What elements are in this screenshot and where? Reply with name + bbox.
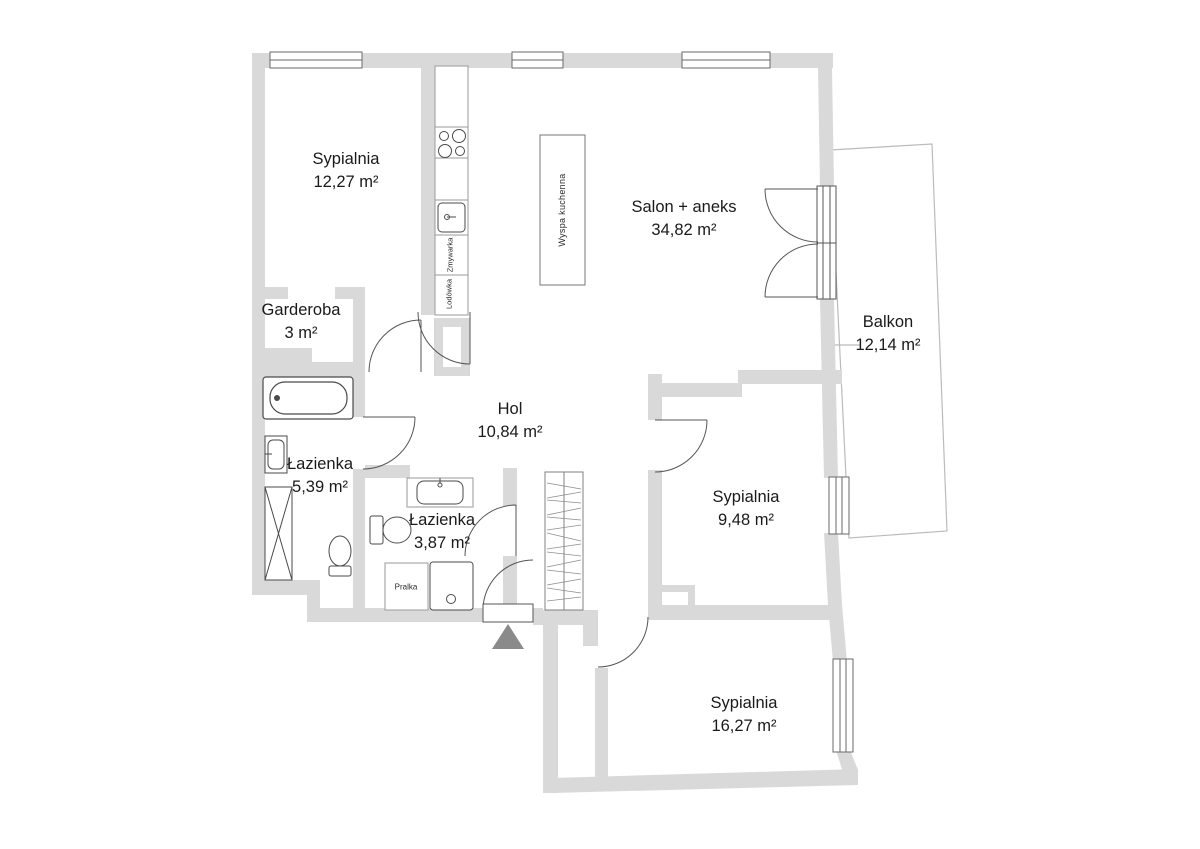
door-arc: [363, 417, 415, 469]
shower-icon: [265, 487, 292, 580]
wall-segment: [828, 605, 847, 662]
wall-niche: [662, 592, 688, 605]
floorplan-canvas: Sypialnia 12,27 m² Garderoba 3 m² Łazien…: [0, 0, 1200, 849]
wall-segment: [648, 383, 742, 397]
shower-tray-icon: [430, 562, 473, 610]
room-area: 3 m²: [262, 322, 341, 345]
window: [833, 659, 853, 752]
room-name: Sypialnia: [313, 150, 380, 168]
wall-segment: [818, 68, 834, 187]
room-name: Sypialnia: [713, 488, 780, 506]
room-name: Balkon: [863, 313, 913, 331]
window: [270, 52, 362, 68]
room-name: Łazienka: [287, 455, 353, 473]
room-area: 16,27 m²: [711, 715, 778, 738]
room-name: Łazienka: [409, 511, 475, 529]
sink-icon: [265, 436, 287, 473]
wall-segment: [595, 668, 608, 782]
wall-segment: [365, 465, 410, 478]
wall-segment: [353, 377, 365, 417]
room-area: 3,87 m²: [409, 532, 475, 555]
room-name: Salon + aneks: [631, 198, 736, 216]
wall-segment: [252, 362, 357, 377]
washing-machine-label: Pralka: [395, 583, 418, 592]
room-area: 12,27 m²: [313, 171, 380, 194]
toilet-icon: [370, 516, 411, 544]
wall-segment: [648, 605, 837, 620]
room-label-sypialnia-3: Sypialnia 16,27 m²: [711, 692, 778, 738]
room-area: 34,82 m²: [631, 219, 736, 242]
window: [512, 52, 563, 68]
room-name: Sypialnia: [711, 694, 778, 712]
toilet-icon: [329, 536, 351, 576]
room-label-salon: Salon + aneks 34,82 m²: [631, 196, 736, 242]
wardrobe-icon: [545, 472, 583, 610]
wall-segment: [820, 299, 838, 478]
entrance-arrow-icon: [492, 624, 524, 649]
room-label-sypialnia-1: Sypialnia 12,27 m²: [313, 148, 380, 194]
room-area: 10,84 m²: [477, 421, 542, 444]
wall-segment: [252, 287, 288, 299]
wall-segment: [353, 469, 365, 622]
room-area: 5,39 m²: [287, 476, 353, 499]
entrance-door: [483, 604, 533, 622]
room-name: Hol: [498, 400, 523, 418]
door-arc: [598, 617, 648, 667]
wall-segment: [421, 68, 435, 315]
room-label-lazienka-2: Łazienka 3,87 m²: [409, 509, 475, 555]
wall-segment: [648, 470, 662, 606]
window: [682, 52, 770, 68]
room-name: Garderoba: [262, 301, 341, 319]
fridge-label: Lodówka: [445, 279, 454, 309]
dishwasher-label: Zmywarka: [446, 238, 455, 273]
door-arc: [369, 320, 421, 372]
kitchen-counter: [435, 66, 468, 315]
sink-icon: [417, 478, 463, 504]
wall-segment: [260, 348, 312, 362]
room-label-balkon: Balkon 12,14 m²: [855, 311, 920, 357]
room-label-lazienka-1: Łazienka 5,39 m²: [287, 453, 353, 499]
room-label-hol: Hol 10,84 m²: [477, 398, 542, 444]
floorplan-drawing: [0, 0, 1200, 849]
wall-segment: [543, 622, 558, 793]
room-area: 9,48 m²: [713, 509, 780, 532]
room-area: 12,14 m²: [855, 334, 920, 357]
wall-segment: [533, 610, 598, 646]
door-arc: [655, 420, 707, 472]
wall-segment: [503, 468, 517, 506]
room-label-sypialnia-2: Sypialnia 9,48 m²: [713, 486, 780, 532]
kitchen-island-label: Wyspa kuchenna: [557, 173, 567, 246]
room-label-garderoba: Garderoba 3 m²: [262, 299, 341, 345]
balcony-door: [765, 186, 836, 299]
wall-segment: [824, 533, 842, 605]
wall-segment: [503, 556, 517, 610]
bathtub-icon: [263, 377, 353, 419]
window: [829, 477, 849, 534]
